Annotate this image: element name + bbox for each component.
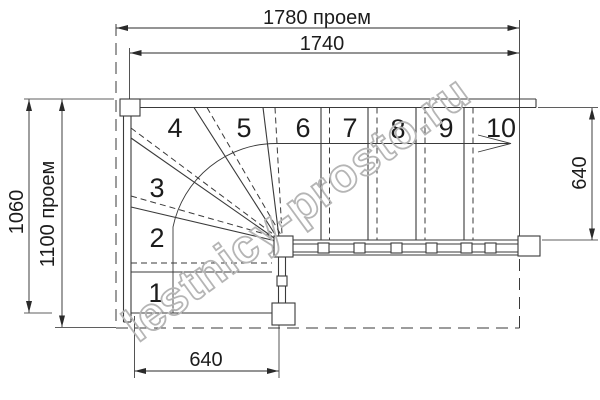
step-label-6: 6	[295, 113, 310, 143]
stair-plan-canvas: 1780 проем 1740 1060 1100 проем 640 640 …	[0, 0, 600, 400]
stair-risers	[131, 20, 520, 272]
end-newel-post	[518, 236, 540, 256]
baluster	[461, 243, 472, 253]
dim-left-outer: 1060	[6, 190, 28, 235]
dim-left-opening: 1100 проем	[37, 161, 59, 268]
baluster	[485, 243, 496, 253]
bottom-newel-post	[272, 303, 295, 325]
baluster	[354, 243, 365, 253]
step-label-5: 5	[236, 113, 251, 143]
dim-top-stair: 1740	[300, 33, 345, 55]
railing	[272, 236, 540, 325]
stair-plan-drawing: 1780 проем 1740 1060 1100 проем 640 640 …	[0, 0, 600, 400]
step-label-4: 4	[167, 113, 182, 143]
baluster	[318, 243, 329, 253]
step-label-3: 3	[149, 173, 164, 203]
baluster	[391, 243, 402, 253]
baluster	[277, 276, 287, 286]
wall-post	[120, 99, 140, 116]
step-label-2: 2	[149, 223, 164, 253]
dim-right-width: 640	[569, 156, 591, 189]
step-label-10: 10	[486, 113, 516, 143]
dim-top-opening: 1780 проем	[263, 7, 371, 29]
baluster	[426, 243, 437, 253]
dim-bottom-width: 640	[189, 349, 222, 371]
